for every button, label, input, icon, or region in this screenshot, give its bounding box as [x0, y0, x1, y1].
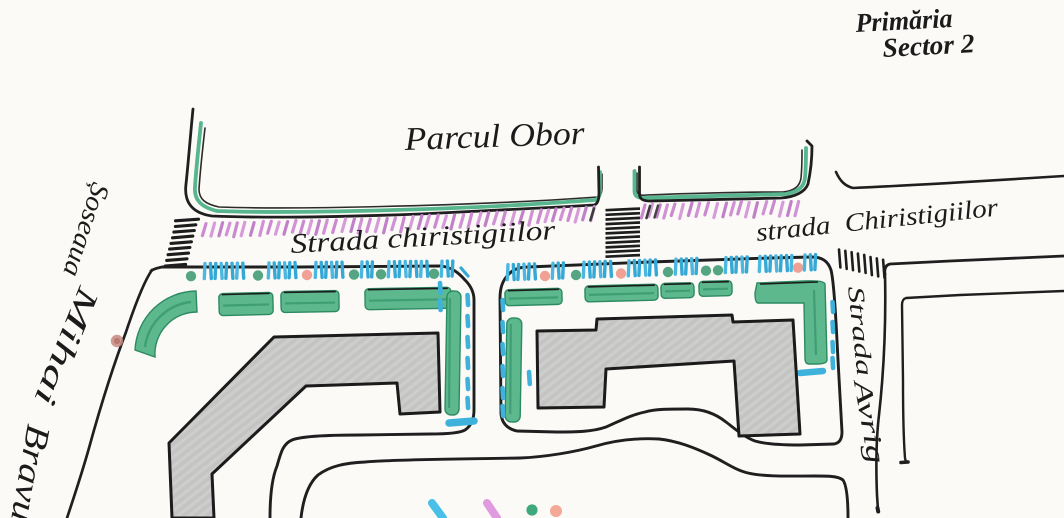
svg-text:Sector 2: Sector 2 — [882, 28, 975, 63]
svg-text:Parcul Obor: Parcul Obor — [403, 116, 585, 158]
